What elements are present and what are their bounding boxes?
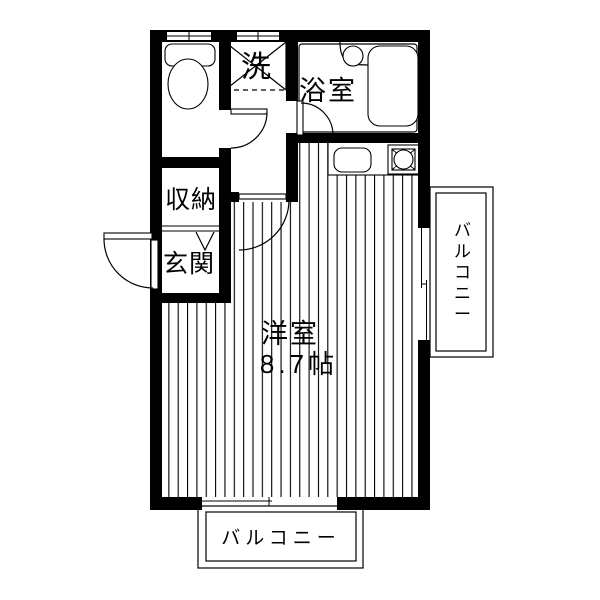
bathroom-label: 浴室 xyxy=(299,76,357,106)
entrance-door xyxy=(104,233,158,289)
kitchen-counter xyxy=(328,142,419,175)
toilet-icon xyxy=(165,44,215,109)
balcony-right-label: バルコニー xyxy=(454,221,471,324)
laundry-label: 洗 xyxy=(241,51,271,84)
bathroom-door xyxy=(297,101,333,135)
floorplan: バルコニー バルコニー 洗 浴室 収納 玄関 洋室 8.7帖 xyxy=(0,0,600,600)
main-room-label: 洋室 xyxy=(261,319,319,349)
toilet-door xyxy=(231,109,267,148)
floor-plan-svg: バルコニー バルコニー 洗 浴室 収納 玄関 洋室 8.7帖 xyxy=(0,0,600,600)
stove-icon xyxy=(388,145,419,174)
balcony-bottom: バルコニー xyxy=(198,506,363,568)
balcony-right: バルコニー xyxy=(430,187,493,357)
bathtub-icon xyxy=(368,46,418,126)
balcony-bottom-sliding-window-icon xyxy=(202,497,337,510)
main-room-size-label: 8.7帖 xyxy=(260,349,338,379)
balcony-bottom-label: バルコニー xyxy=(221,528,341,549)
entrance-step-mark xyxy=(196,232,214,250)
balcony-right-sliding-window-icon xyxy=(418,228,430,340)
entrance-label: 玄関 xyxy=(163,250,215,278)
closet-divider xyxy=(162,226,219,231)
kitchen-sink-icon xyxy=(334,148,371,172)
closet-label: 収納 xyxy=(165,186,217,214)
wash-basin-icon xyxy=(343,46,363,66)
